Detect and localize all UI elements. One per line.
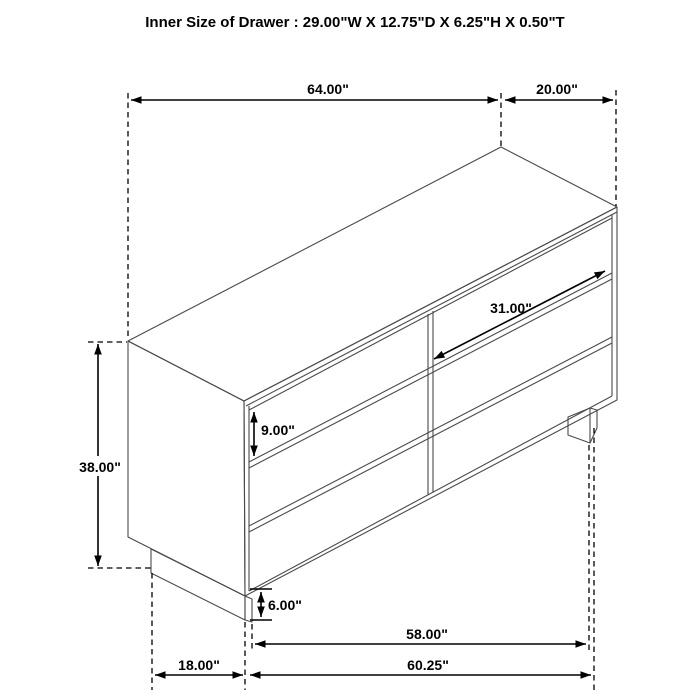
plinth-side-face	[151, 549, 245, 620]
front-face	[244, 207, 617, 596]
dim-label-overall-width: 64.00"	[307, 81, 349, 97]
dim-label-overall-depth: 20.00"	[536, 81, 578, 97]
front-left-leg	[245, 596, 252, 622]
dim-label-drawer-front-width: 31.00"	[490, 300, 532, 316]
dresser-drawing	[128, 147, 617, 622]
drawer-gap2-lower-line	[249, 343, 612, 532]
dim-label-drawer-front-height: 9.00"	[261, 422, 295, 438]
top-edge-lip-line	[246, 212, 617, 406]
side-face	[128, 341, 245, 596]
dimension-base-front-width: 60.25"	[250, 657, 591, 675]
dim-label-base-inner-width: 58.00"	[406, 626, 448, 642]
diagram-title: Inner Size of Drawer : 29.00"W X 12.75"D…	[145, 14, 564, 31]
dimension-base-clearance: 6.00"	[250, 589, 302, 620]
drawer-gap1-upper-line	[249, 273, 612, 462]
extension-lines	[88, 90, 616, 690]
bottom-frame-inner-line	[249, 396, 612, 591]
dimension-base-inner-width: 58.00"	[255, 626, 586, 644]
dim-label-base-front-width: 60.25"	[407, 657, 449, 673]
dim-label-overall-height: 38.00"	[79, 459, 121, 475]
dimension-drawer-front-height: 9.00"	[254, 412, 295, 456]
drawer-top-rail-line	[249, 218, 612, 410]
dimension-overall-depth: 20.00"	[505, 81, 613, 100]
dim-label-base-side-depth: 18.00"	[178, 657, 220, 673]
dimension-overall-width: 64.00"	[131, 81, 498, 100]
dresser-dimension-diagram: Inner Size of Drawer : 29.00"W X 12.75"D…	[0, 0, 700, 700]
dim-label-base-clearance: 6.00"	[268, 597, 302, 613]
top-face	[128, 147, 617, 401]
drawer-gap1-lower-line	[249, 279, 612, 468]
dimension-overall-height: 38.00"	[74, 344, 126, 566]
dimension-diagram-page: Inner Size of Drawer : 29.00"W X 12.75"D…	[0, 0, 700, 700]
dimension-drawer-front-width: 31.00"	[434, 271, 605, 359]
dimension-base-side-depth: 18.00"	[155, 657, 243, 675]
